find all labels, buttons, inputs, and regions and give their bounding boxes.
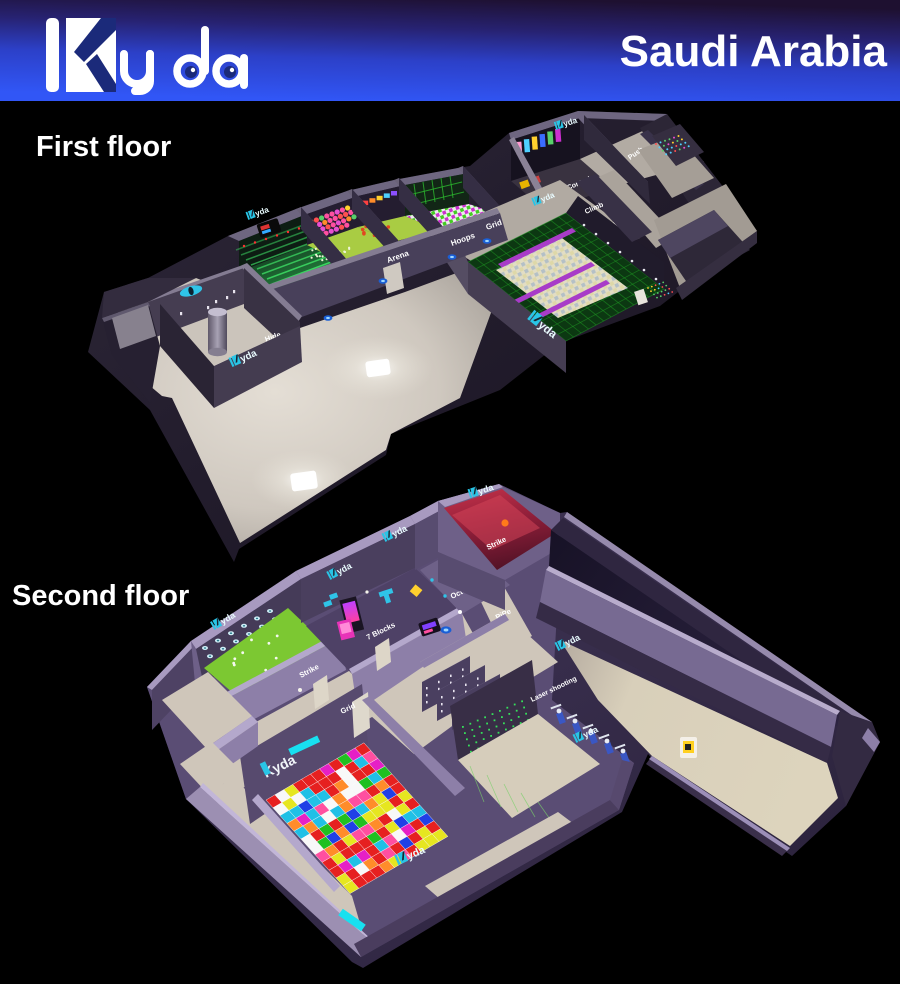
svg-text:Second floor: Second floor <box>12 580 189 612</box>
svg-text:First floor: First floor <box>36 131 171 163</box>
svg-text:Saudi Arabia: Saudi Arabia <box>620 27 888 76</box>
